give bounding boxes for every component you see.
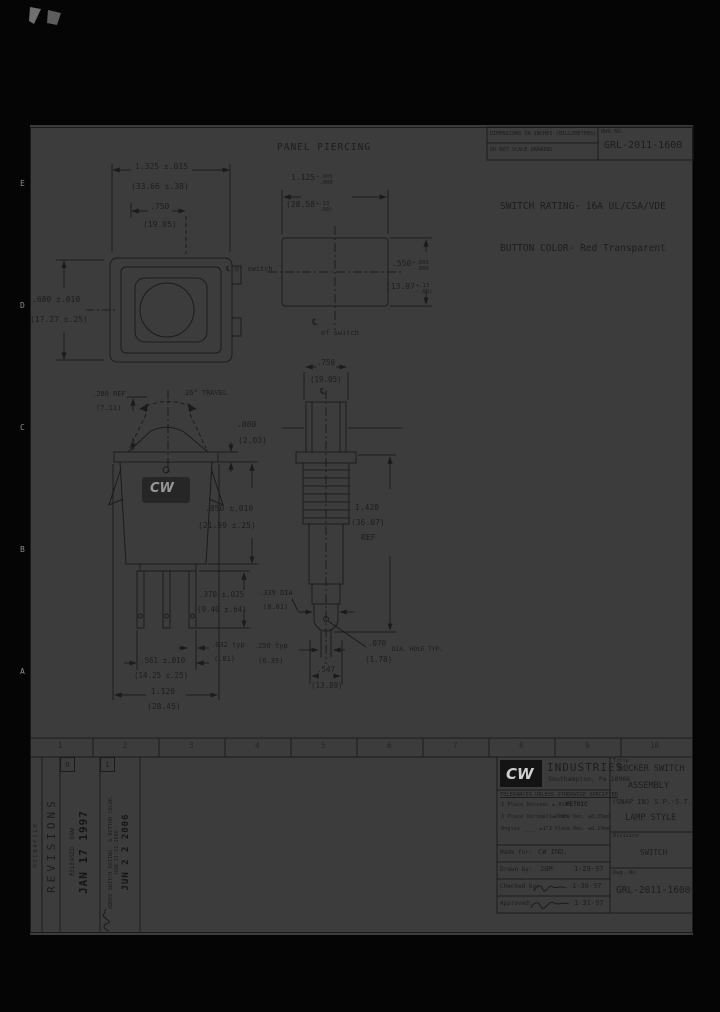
made-for-label: Made for: — [500, 850, 533, 856]
dim-lamp-len-mm: (36.07) — [351, 519, 385, 527]
rev0-entry: RELEASEDDGW JAN 17 1997 — [60, 771, 100, 933]
dim-flange-thk-mm: (2.03) — [238, 437, 267, 445]
dim-tip-width-in: .547 — [317, 666, 335, 674]
switch-rating-note: SWITCH RATING- 16A UL/CSA/VDE — [500, 202, 666, 212]
zone-number: 2 — [123, 742, 128, 750]
dim-body-width-mm: (28.45) — [147, 703, 181, 711]
dim-term-len-mm: (9.40 ±.64) — [197, 606, 247, 614]
dim-tip-offset-mm: (6.35) — [258, 658, 283, 665]
dim-term-span-in: .561 ±.010 — [140, 657, 185, 665]
dim-body-width-in: 1.120 — [151, 688, 175, 696]
title-line2: ASSEMBLY — [628, 782, 669, 791]
dim-lamp-dia-in: .339 DIA — [259, 590, 293, 597]
metric-label: METRIC — [566, 802, 588, 808]
zone-number: 1 — [58, 742, 63, 750]
drawing-sheet-scan: E D C B A 1 2 3 4 5 6 7 8 9 10 PANEL PIE… — [0, 0, 720, 1012]
panel-piercing-title: PANEL PIERCING — [277, 143, 371, 153]
checked-date: 1-30-97 — [572, 883, 602, 890]
tolerance-angles: Angles ____ ±1° — [501, 827, 549, 832]
drawn-date: 1-29-97 — [574, 866, 604, 873]
cw-logo-rocker: CW — [150, 481, 174, 496]
rev1-date-stamp: JUN 2 2 2006 — [121, 813, 132, 890]
approved-label: Approved: — [500, 901, 533, 907]
zone-letter: E — [20, 180, 25, 188]
dimensions-note: DIMENSIONS IN INCHES (MILLIMETERS) — [490, 132, 596, 137]
dim-mount-width-in: .750 — [150, 203, 169, 211]
dim-term-span-mm: (14.25 ±.25) — [134, 672, 188, 680]
centerline-symbol: ℄ — [312, 319, 318, 328]
dim-term-len-in: .370 ±.025 — [199, 591, 244, 599]
zone-letter: B — [20, 546, 25, 554]
zone-number: 3 — [189, 742, 194, 750]
dwg-no-cell-label: Dwg. No. — [613, 871, 639, 876]
drawn-by-label: Drawn by: — [500, 867, 533, 873]
rev1-initials-scribble — [100, 907, 112, 933]
dim-cutout-width-mm: (28.58+.13-.00) — [286, 201, 332, 216]
dim-cutout-height-in: .550+.005-.000 — [392, 260, 429, 275]
centerline-of-switch-label: of switch — [321, 330, 359, 337]
made-for-value: CW IND. — [538, 849, 568, 856]
dim-tip-offset-in: .250 typ — [254, 643, 288, 650]
title-line1: ROCKER SWITCH — [618, 765, 685, 774]
dim-lamp-len-in: 1.420 — [355, 504, 379, 512]
centerline-of-switch-label: ℄ of switch — [226, 266, 273, 273]
centerline-symbol: ℄ — [320, 388, 326, 397]
button-color-note: BUTTON COLOR- Red Transparent — [500, 244, 666, 254]
company-address: Southampton, Pa 18966 — [548, 776, 630, 783]
zone-number: 8 — [519, 742, 524, 750]
zone-number: 9 — [585, 742, 590, 750]
dim-mount-width-mm: (19.05) — [143, 221, 177, 229]
division-label: Division — [613, 834, 639, 839]
tolerance-2place: 2 Place Decimal ±.010 — [501, 803, 568, 808]
dim-tip-width-mm: (13.89) — [311, 682, 343, 690]
rev0-desc: RELEASED — [69, 847, 77, 876]
dim-body-depth-mm: (21.59 ±.25) — [198, 522, 256, 530]
dim-rocker-proj-in: .280 REF — [92, 391, 126, 398]
rev1-entry: ADDED SWITCH RATING& BUTTON COLOR. DGW 1… — [100, 771, 140, 933]
dim-lamp-top-in: .750 — [317, 359, 335, 367]
metric-2place: 2 Place Dec. ±0.13mm — [549, 827, 609, 832]
microfilm-strip: MICROFILM — [30, 757, 42, 933]
division-value: SWITCH — [640, 849, 667, 857]
tolerance-header: TOLERANCES UNLESS OTHERWISE SPECIFIED — [500, 793, 618, 798]
zone-number: 5 — [321, 742, 326, 750]
dwg-no-value: GRL-2011-1600 — [616, 886, 690, 896]
dim-flange-thk-in: .080 — [237, 421, 256, 429]
dim-lamp-dia-mm: (8.61) — [263, 604, 288, 611]
lamp-len-ref-label: REF — [361, 534, 375, 542]
dim-cutout-height-mm: (13.97+.13-.00) — [386, 283, 432, 298]
zone-number: 7 — [453, 742, 458, 750]
approved-date: 1-31-97 — [574, 900, 604, 907]
rev0-date-stamp: JAN 17 1997 — [77, 810, 91, 894]
dia-hole-typ-label: DIA. HOLE TYP. — [392, 647, 443, 653]
dwg-no-header: GRL-2011-1600 — [604, 141, 682, 151]
dim-term-thk-mm: (.81) — [214, 656, 235, 663]
drawn-by-value: JGM — [540, 866, 553, 873]
dim-lamp-top-mm: (19.05) — [310, 376, 342, 384]
dim-bezel-height-mm: (17.27 ±.25) — [30, 316, 88, 324]
rev0-id-box: O — [60, 757, 75, 772]
travel-label: 26° TRAVEL — [185, 390, 227, 397]
metric-1place: 1 Place Dec. ±0.25mm — [549, 815, 609, 820]
zone-letter: D — [20, 302, 25, 310]
rev0-by: DGW — [69, 828, 77, 839]
scan-artifact — [29, 7, 61, 25]
zone-letter: C — [20, 424, 25, 432]
dim-term-thk-in: .032 typ — [211, 642, 245, 649]
dim-hole-in: .070 — [368, 640, 386, 648]
revisions-header: REVISIONS — [42, 757, 60, 933]
checked-by-label: Checked by: — [500, 884, 540, 890]
zone-number: 6 — [387, 742, 392, 750]
dim-body-depth-in: .850 ±.010 — [205, 505, 253, 513]
title-line3: (SNAP IN) S.P.-S.T. — [612, 799, 692, 806]
dim-bezel-width-mm: (33.66 ±.38) — [131, 183, 189, 191]
dim-bezel-height-in: .680 ±.010 — [32, 296, 80, 304]
title-line4: LAMP STYLE — [625, 814, 676, 823]
company-name: INDUSTRIES — [547, 762, 623, 773]
cw-logo: CW — [506, 765, 534, 783]
dim-hole-mm: (1.78) — [365, 656, 392, 664]
zone-number: 4 — [255, 742, 260, 750]
dim-cutout-width-in: 1.125+.005-.000 — [291, 174, 333, 189]
zone-letter: A — [20, 668, 25, 676]
dim-rocker-proj-mm: (7.11) — [96, 405, 121, 412]
zone-number: 10 — [650, 742, 659, 750]
rev1-id-box: 1 — [100, 757, 115, 772]
dim-bezel-width-in: 1.325 ±.015 — [135, 163, 188, 171]
dwg-no-label: DWG NO. — [601, 130, 624, 136]
no-scale-note: DO NOT SCALE DRAWING — [490, 148, 552, 153]
